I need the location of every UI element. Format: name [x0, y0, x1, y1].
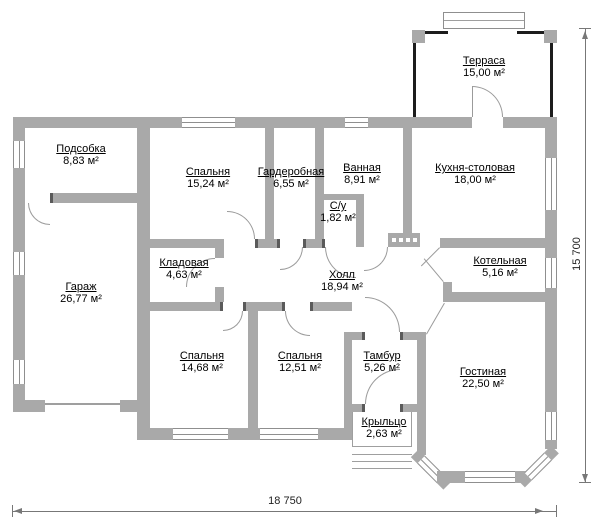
room-label-boiler: Котельная5,16 м²: [450, 255, 550, 279]
room-label-porch: Крыльцо2,63 м²: [334, 416, 434, 440]
window: [545, 158, 557, 210]
door-arc: [365, 297, 400, 332]
wall-exterior-bottom: [228, 428, 260, 440]
door-leaf: [426, 303, 445, 335]
door-arc: [285, 311, 310, 336]
room-label-hall: Холл18,94 м²: [292, 269, 392, 293]
window: [173, 428, 228, 440]
wall-cap: [243, 302, 246, 311]
window: [13, 141, 25, 168]
dimension-tick: [12, 505, 13, 517]
wall-cap: [220, 302, 223, 311]
wall-garage-east: [137, 128, 150, 440]
wall-cap: [362, 404, 365, 412]
terrace-column: [412, 30, 425, 43]
dimension-label-height: 15 700: [571, 214, 583, 294]
wall-exterior-top: [368, 117, 472, 128]
terrace-wall: [425, 31, 448, 34]
wall-cap: [282, 302, 285, 311]
wall-exterior-right: [545, 117, 557, 158]
wall-exterior-right: [545, 288, 557, 412]
window: [182, 117, 235, 128]
dimension-arrow-right: [535, 508, 543, 514]
bay-wall-diagonal: [411, 449, 451, 489]
door-arc: [472, 86, 503, 117]
room-label-living: Гостиная22,50 м²: [433, 366, 533, 390]
wall-bedrooms-north: [150, 302, 223, 311]
bay-wall-diagonal: [517, 446, 559, 488]
window: [260, 428, 318, 440]
wall-cap: [400, 332, 403, 340]
wall-living-top: [443, 292, 545, 302]
dimension-tick: [579, 28, 591, 29]
dimension-line-right: [585, 29, 586, 483]
room-label-kitchen: Кухня-столовая18,00 м²: [411, 162, 539, 186]
wall-vestibule-top: [400, 332, 426, 340]
wall-exterior-top: [13, 117, 182, 128]
room-label-wc: С/у1,82 м²: [313, 200, 363, 224]
porch-step: [352, 454, 412, 455]
room-label-utility: Подсобка8,83 м²: [31, 143, 131, 167]
wall-garage-front: [13, 400, 45, 412]
room-label-pantry: Кладовая4,63 м²: [134, 257, 234, 281]
window: [465, 471, 515, 483]
vent-flue: [392, 238, 396, 242]
door-arc: [365, 369, 400, 404]
room-label-garage: Гараж26,77 м²: [31, 281, 131, 305]
door-arc: [223, 311, 243, 331]
door-arc: [364, 247, 388, 271]
dimension-arrow-up: [582, 31, 588, 39]
wall-vestibule-bottom: [400, 404, 426, 412]
porch-step: [352, 468, 412, 469]
window: [545, 412, 557, 440]
door-arc: [28, 203, 50, 225]
dimension-tick: [579, 482, 591, 483]
terrace-wall: [413, 43, 416, 117]
garage-gate: [45, 403, 120, 405]
wall-exterior-left: [13, 275, 25, 360]
wall-cap: [303, 239, 306, 248]
wall-cap: [362, 332, 365, 340]
room-label-vestibule: Тамбур5,26 м²: [332, 350, 432, 374]
wall-exterior-left: [13, 117, 25, 141]
wall-exterior-right: [545, 210, 557, 258]
door-arc: [280, 247, 303, 270]
floor-plan: Терраса15,00 м² Подсобка8,83 м² Спальня1…: [0, 0, 600, 521]
door-leaf: [421, 247, 440, 266]
vent-flue: [406, 238, 410, 242]
vent-flue: [399, 238, 403, 242]
wall-cap: [255, 239, 258, 248]
wall-cap: [400, 404, 403, 412]
dimension-arrow-left: [14, 508, 22, 514]
vent-flue: [413, 238, 417, 242]
room-label-terrace: Терраса15,00 м²: [434, 55, 534, 79]
dimension-tick: [556, 505, 557, 517]
door-leaf: [424, 258, 444, 282]
room-label-bedroom-2: Спальня14,68 м²: [152, 350, 252, 374]
wall-cap: [310, 302, 313, 311]
terrace-column: [544, 30, 557, 43]
terrace-wall: [517, 31, 544, 34]
dimension-label-width: 18 750: [245, 495, 325, 507]
wall-bedrooms-north: [310, 302, 352, 311]
wall-exterior-top: [235, 117, 345, 128]
window: [345, 117, 368, 128]
dimension-arrow-down: [582, 474, 588, 482]
porch-step: [352, 461, 412, 462]
window: [524, 453, 552, 481]
dimension-line-bottom: [13, 511, 557, 512]
room-label-bathroom: Ванная8,91 м²: [312, 162, 412, 186]
window: [13, 360, 25, 384]
wall-hall-north: [150, 239, 223, 248]
wall-exterior-left: [13, 168, 25, 252]
terrace-step-line: [444, 20, 524, 21]
wall-boiler-top: [440, 238, 545, 248]
wall-pantry-east: [215, 287, 224, 302]
wall-bedrooms-north: [243, 302, 285, 311]
wall-cap: [50, 193, 53, 203]
wall-pantry-east: [215, 239, 224, 258]
door-arc: [227, 211, 255, 239]
door-leaf: [472, 86, 473, 117]
wall-utility: [50, 193, 150, 203]
window: [13, 252, 25, 275]
terrace-wall: [550, 43, 553, 117]
